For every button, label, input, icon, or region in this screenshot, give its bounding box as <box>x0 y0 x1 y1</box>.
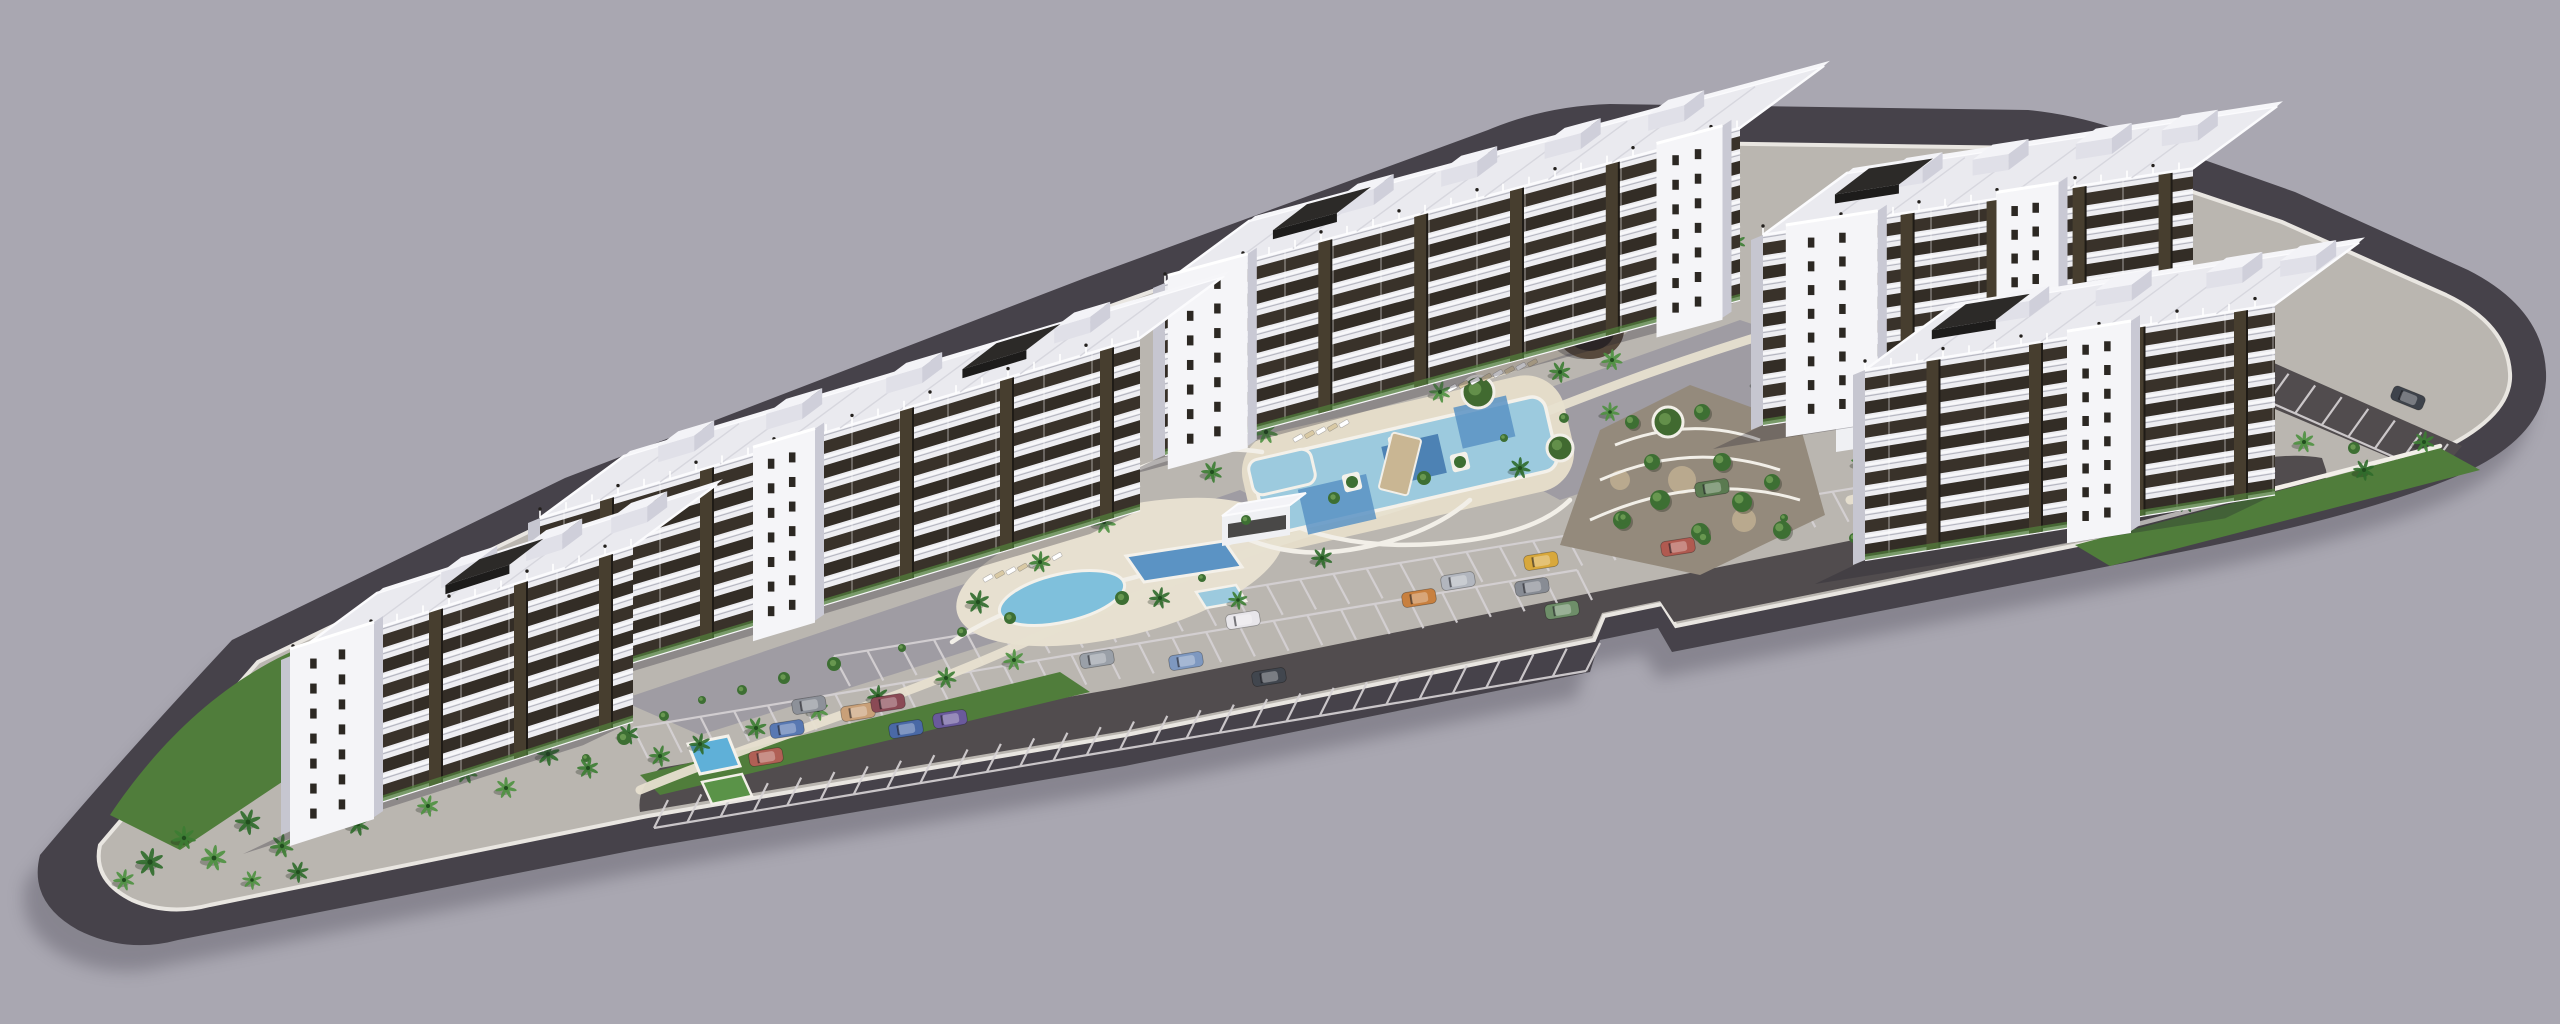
tower-window <box>768 508 775 518</box>
tower-window <box>1187 409 1194 419</box>
tower-window <box>1672 253 1679 263</box>
post-cap <box>1863 359 1866 362</box>
tower-window <box>2082 440 2089 450</box>
tower-window <box>1187 335 1194 345</box>
tower-window <box>1187 311 1194 321</box>
bush-highlight <box>1781 515 1785 519</box>
post-cap <box>1006 367 1009 370</box>
tower-window <box>789 477 796 487</box>
tower-window <box>1214 303 1221 313</box>
tower-window <box>1808 333 1815 343</box>
bush-highlight <box>1330 494 1335 499</box>
facade-pier <box>1606 161 1619 337</box>
post-cap <box>538 507 541 510</box>
tower-window <box>1839 375 1846 385</box>
post-cap <box>850 414 853 417</box>
post-cap <box>2019 334 2022 337</box>
post-cap <box>928 390 931 393</box>
post-cap <box>1761 224 1764 227</box>
tower-window <box>1695 247 1702 257</box>
palm-core <box>698 742 702 746</box>
tower-window <box>2104 436 2111 446</box>
facade-pier <box>1318 238 1331 414</box>
facade-pier <box>900 406 913 582</box>
palm-core <box>1012 658 1016 662</box>
tower-window <box>2082 463 2089 473</box>
tower-window <box>768 532 775 542</box>
post-cap <box>603 544 606 547</box>
bush-highlight <box>830 660 836 666</box>
post-cap <box>2175 309 2178 312</box>
facade-pier <box>1414 212 1427 388</box>
bush-highlight <box>1420 474 1426 480</box>
tower-window <box>2082 416 2089 426</box>
tower-window <box>768 459 775 469</box>
tower-window <box>310 809 317 819</box>
tower-window <box>339 649 346 659</box>
facade-pier <box>1100 346 1113 522</box>
tower-window <box>768 483 775 493</box>
palm-core <box>1158 596 1162 600</box>
post-cap <box>1631 146 1634 149</box>
tower-side <box>1248 248 1257 446</box>
tower-window <box>2104 484 2111 494</box>
bush-highlight <box>620 734 626 740</box>
tower-window <box>1214 353 1221 363</box>
palm-core <box>246 820 251 825</box>
tower-window <box>1214 377 1221 387</box>
tower-window <box>1808 285 1815 295</box>
palm-core <box>504 786 508 790</box>
palm-core <box>1518 466 1522 470</box>
planter-shrub <box>1552 440 1562 450</box>
tower-window <box>1695 223 1702 233</box>
bush-highlight <box>1561 415 1566 420</box>
tower-window <box>789 502 796 512</box>
tower-window <box>2104 341 2111 351</box>
palm-core <box>2302 440 2306 444</box>
tower-side <box>2131 315 2140 531</box>
tower-window <box>2104 508 2111 518</box>
tower-window <box>1695 149 1702 159</box>
palm-core <box>1558 370 1562 374</box>
bush-highlight <box>739 687 744 692</box>
tower-window <box>768 606 775 616</box>
tower-window <box>339 774 346 784</box>
tower-window <box>2032 274 2039 284</box>
west-wall <box>1853 370 1865 565</box>
post-cap <box>694 461 697 464</box>
bush-highlight <box>1199 575 1203 579</box>
palm-core <box>976 600 980 604</box>
post-cap <box>447 594 450 597</box>
tower-window <box>1187 360 1194 370</box>
tower-window <box>310 684 317 694</box>
tower-window <box>1839 304 1846 314</box>
bush-highlight <box>1243 517 1248 522</box>
palm-core <box>212 856 217 861</box>
bush-highlight <box>1501 435 1505 439</box>
tower-window <box>1808 238 1815 248</box>
tower-window <box>339 724 346 734</box>
tower-window <box>1187 434 1194 444</box>
tower-window <box>1839 328 1846 338</box>
facade-pier <box>1510 186 1523 362</box>
tower-window <box>339 799 346 809</box>
tower-window <box>1672 180 1679 190</box>
tree-highlight <box>1696 406 1703 413</box>
tower-window <box>2011 254 2018 264</box>
tower-window <box>768 557 775 567</box>
tower-window <box>768 582 775 592</box>
bush-highlight <box>661 713 666 718</box>
bush-highlight <box>699 697 703 701</box>
tower-side <box>1723 120 1732 318</box>
tree-highlight <box>1775 523 1783 531</box>
tower-window <box>789 600 796 610</box>
tower-side <box>815 423 824 621</box>
post-cap <box>1553 167 1556 170</box>
planter-shrub <box>1469 383 1482 396</box>
tower-window <box>2011 206 2018 216</box>
bush-highlight <box>780 674 785 679</box>
tree-highlight <box>1627 417 1633 423</box>
tower-window <box>1214 402 1221 412</box>
facade-pier <box>599 553 612 732</box>
facade-pier <box>1000 376 1013 552</box>
tower-window <box>1672 204 1679 214</box>
bush-highlight <box>583 755 587 759</box>
tower-window <box>2104 413 2111 423</box>
post-cap <box>1475 188 1478 191</box>
tower-side <box>374 616 383 817</box>
tower-window <box>2032 227 2039 237</box>
post-cap <box>1941 347 1944 350</box>
tower-window <box>1672 278 1679 288</box>
facade-pier <box>2234 309 2247 501</box>
stair-tower <box>753 429 815 642</box>
planter-shrub <box>1659 413 1671 425</box>
tower-window <box>1695 297 1702 307</box>
tower-window <box>310 784 317 794</box>
tower-window <box>2082 487 2089 497</box>
palm-core <box>1038 560 1042 564</box>
tree-highlight <box>1646 456 1653 463</box>
tower-window <box>339 674 346 684</box>
palm-core <box>1236 598 1240 602</box>
tower-window <box>339 749 346 759</box>
tower-window <box>2032 250 2039 260</box>
tower-window <box>1839 399 1846 409</box>
pool-planter-shrub <box>1346 476 1358 488</box>
tower-window <box>2082 368 2089 378</box>
tower-window <box>2011 230 2018 240</box>
post-cap <box>2151 164 2154 167</box>
tower-window <box>1808 404 1815 414</box>
palm-core <box>122 878 126 882</box>
post-cap <box>1084 344 1087 347</box>
bush-highlight <box>959 629 964 634</box>
palm-core <box>182 836 186 840</box>
tower-window <box>2104 389 2111 399</box>
tower-window <box>2032 203 2039 213</box>
post-cap <box>1917 200 1920 203</box>
palm-core <box>2422 440 2426 444</box>
post-cap <box>1397 209 1400 212</box>
tower-window <box>1839 256 1846 266</box>
tree-highlight <box>1653 493 1662 502</box>
tree-highlight <box>1693 525 1701 533</box>
post-cap <box>2073 176 2076 179</box>
tower-window <box>310 759 317 769</box>
post-cap <box>1319 230 1322 233</box>
palm-core <box>586 766 590 770</box>
tower-window <box>2082 345 2089 355</box>
tower-window <box>2082 511 2089 521</box>
palm-core <box>1610 358 1614 362</box>
render-viewport <box>0 0 2560 1024</box>
tower-window <box>789 551 796 561</box>
palm-core <box>658 754 662 758</box>
palm-core <box>2362 468 2366 472</box>
palm-core <box>147 859 152 864</box>
tower-window <box>1808 309 1815 319</box>
west-wall <box>1751 235 1763 430</box>
post-cap <box>2253 297 2256 300</box>
palm-core <box>1608 410 1612 414</box>
palm-core <box>1320 556 1324 560</box>
palm-core <box>1210 470 1214 474</box>
tower-window <box>1695 272 1702 282</box>
tower-window <box>310 734 317 744</box>
tower-window <box>789 575 796 585</box>
palm-core <box>250 878 254 882</box>
bush-highlight <box>1006 614 1011 619</box>
post-cap <box>1163 272 1166 275</box>
stair-tower <box>1657 126 1723 338</box>
tower-window <box>1808 356 1815 366</box>
tower-window <box>339 699 346 709</box>
site-plan-render <box>0 0 2560 1024</box>
tower-window <box>1839 280 1846 290</box>
facade-pier <box>1927 358 1940 550</box>
tree-highlight <box>1715 455 1723 463</box>
stair-tower <box>2067 321 2131 543</box>
tower-window <box>2104 365 2111 375</box>
facade-pier <box>514 580 527 759</box>
tower-window <box>1695 198 1702 208</box>
tower-window <box>2082 392 2089 402</box>
tower-window <box>1839 351 1846 361</box>
facade-pier <box>429 607 442 786</box>
bush-highlight <box>1118 594 1124 600</box>
post-cap <box>525 569 528 572</box>
tower-window <box>789 452 796 462</box>
stair-tower <box>290 622 374 846</box>
tower-window <box>1214 426 1221 436</box>
palm-core <box>296 870 300 874</box>
tower-window <box>1672 229 1679 239</box>
tower-window <box>1672 303 1679 313</box>
tower-window <box>1808 380 1815 390</box>
tower-window <box>1695 174 1702 184</box>
bush-highlight <box>899 645 903 649</box>
bush-highlight <box>2350 444 2355 449</box>
post-cap <box>616 484 619 487</box>
palm-core <box>280 844 284 848</box>
tower-window <box>2011 277 2018 287</box>
tower-window <box>310 709 317 719</box>
bush-highlight <box>1700 534 1706 540</box>
tower-window <box>2104 460 2111 470</box>
tower-window <box>1808 261 1815 271</box>
palm-core <box>426 804 430 808</box>
tower-window <box>310 659 317 669</box>
palm-core <box>944 676 948 680</box>
bush-highlight <box>1620 514 1625 519</box>
tower-window <box>789 526 796 536</box>
tree-highlight <box>1766 476 1773 483</box>
tower-window <box>1187 385 1194 395</box>
facade-pier <box>2029 342 2042 534</box>
tower-window <box>1672 155 1679 165</box>
palm-core <box>754 726 758 730</box>
tree-highlight <box>1735 495 1744 504</box>
tower-window <box>1839 233 1846 243</box>
tower-window <box>1214 328 1221 338</box>
pool-planter-shrub <box>1454 456 1466 468</box>
